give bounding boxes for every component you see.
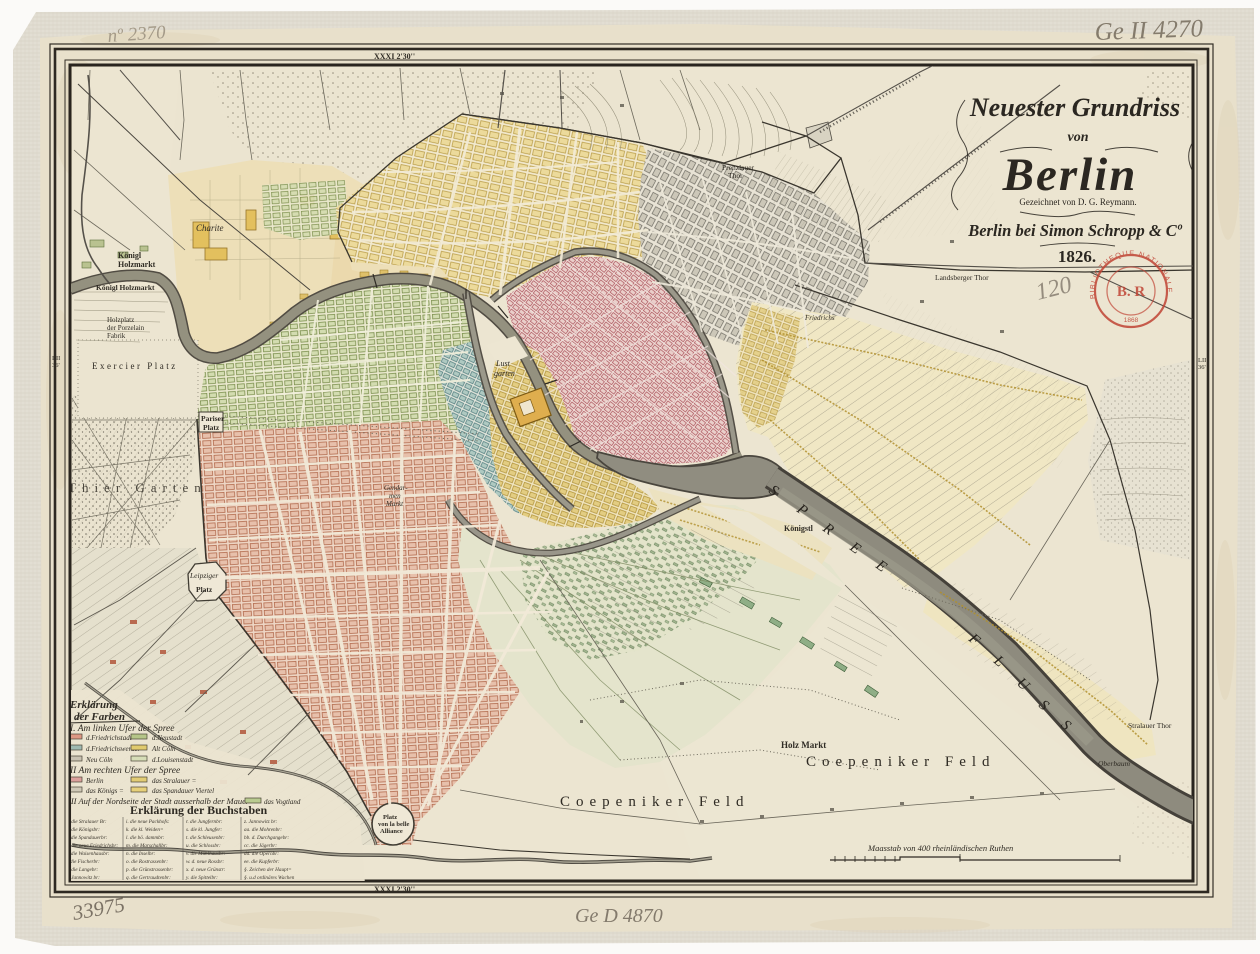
svg-text:f. die Fischerbr:: f. die Fischerbr: — [66, 858, 100, 865]
svg-text:m. die Marschallbr:: m. die Marschallbr: — [126, 843, 168, 849]
svg-text:Markt: Markt — [385, 500, 404, 508]
svg-text:Berlin bei Simon Schropp & Cº: Berlin bei Simon Schropp & Cº — [967, 221, 1183, 240]
svg-text:Gezeichnet von D. G. Reymann.: Gezeichnet von D. G. Reymann. — [1019, 197, 1136, 207]
svg-text:p. die Grünstrassenbr:: p. die Grünstrassenbr: — [125, 867, 173, 873]
svg-text:Königl: Königl — [118, 251, 142, 260]
svg-text:aa. die Mohrenbr:: aa. die Mohrenbr: — [244, 827, 282, 833]
svg-text:B. R: B. R — [1117, 284, 1146, 300]
svg-text:d.Neustadt: d.Neustadt — [152, 734, 183, 742]
svg-text:Stralauer Thor: Stralauer Thor — [1128, 721, 1172, 730]
svg-text:Exercier Platz: Exercier Platz — [92, 361, 178, 371]
svg-text:ee. die Kupferbr:: ee. die Kupferbr: — [244, 858, 280, 865]
svg-text:men: men — [389, 492, 401, 500]
svg-text:s. die kl. Jungfer:: s. die kl. Jungfer: — [186, 826, 222, 833]
svg-text:Neu Cöln: Neu Cöln — [85, 756, 113, 764]
svg-text:Oberbaum: Oberbaum — [1098, 759, 1131, 768]
svg-text:nº 2370: nº 2370 — [107, 22, 167, 47]
svg-text:v. die Mühlhausbr:: v. die Mühlhausbr: — [186, 851, 226, 857]
svg-text:Holzplatz: Holzplatz — [107, 316, 134, 324]
svg-text:I. Am linken Ufer der Spree: I. Am linken Ufer der Spree — [69, 723, 174, 734]
svg-text:das Vogtland: das Vogtland — [264, 798, 301, 806]
svg-text:garten: garten — [494, 369, 515, 378]
svg-text:k. die kl. Weiden=: k. die kl. Weiden= — [126, 827, 163, 833]
svg-text:d.Louisenstadt: d.Louisenstadt — [152, 756, 194, 764]
svg-text:Coepeniker Feld: Coepeniker Feld — [806, 754, 996, 770]
svg-text:Thier Garten: Thier Garten — [68, 480, 207, 495]
svg-text:Friedrichs: Friedrichs — [804, 314, 835, 322]
svg-text:Königl Holzmarkt: Königl Holzmarkt — [96, 283, 155, 292]
svg-text:Landsberger Thor: Landsberger Thor — [935, 273, 989, 282]
svg-text:36': 36' — [1198, 364, 1206, 371]
svg-text:das Spandauer Viertel: das Spandauer Viertel — [152, 787, 214, 795]
svg-text:h. Jannowitz br:: h. Jannowitz br: — [66, 875, 100, 881]
svg-text:Leipziger: Leipziger — [189, 571, 218, 580]
svg-text:1868: 1868 — [1124, 317, 1139, 324]
svg-text:Coepeniker Feld: Coepeniker Feld — [560, 794, 750, 810]
svg-text:Erklärung: Erklärung — [69, 699, 118, 711]
svg-text:y. die Spittelbr:: y. die Spittelbr: — [185, 875, 218, 881]
svg-text:q. die Gertraudtenbr:: q. die Gertraudtenbr: — [126, 875, 171, 881]
svg-text:b. die Königsbr:: b. die Königsbr: — [66, 827, 100, 833]
svg-text:das Königs =: das Königs = — [86, 787, 124, 795]
svg-text:1826.: 1826. — [1058, 247, 1096, 266]
svg-text:Thor: Thor — [728, 171, 743, 180]
svg-text:u. die Schlossbr:: u. die Schlossbr: — [186, 843, 221, 849]
svg-text:r. die Jungfernbr:: r. die Jungfernbr: — [186, 818, 223, 825]
svg-text:Charite: Charite — [196, 223, 224, 233]
svg-text:Gendar-: Gendar- — [384, 484, 408, 492]
svg-text:Ge D 4870: Ge D 4870 — [575, 905, 663, 927]
svg-text:x. d. neue Grünstr:: x. d. neue Grünstr: — [185, 867, 226, 873]
svg-text:Alliance: Alliance — [380, 828, 403, 835]
svg-text:a. die Stralauer Br:: a. die Stralauer Br: — [66, 819, 107, 825]
svg-text:c. die Spandauerbr:: c. die Spandauerbr: — [66, 835, 108, 841]
svg-text:d.Friedrichstadt: d.Friedrichstadt — [86, 734, 133, 742]
svg-text:Neuester Grundriss: Neuester Grundriss — [969, 93, 1180, 122]
svg-text:§. u.d ordinäres Wachen: §. u.d ordinäres Wachen — [244, 875, 295, 881]
svg-text:von la belle: von la belle — [378, 821, 410, 828]
svg-text:§. Zeichen der Haupt=: §. Zeichen der Haupt= — [244, 867, 292, 873]
svg-text:LII: LII — [1198, 357, 1206, 364]
svg-text:Berlin: Berlin — [86, 777, 104, 785]
svg-text:t. die Schleusenbr:: t. die Schleusenbr: — [186, 835, 225, 841]
svg-text:36': 36' — [52, 362, 60, 369]
svg-text:Platz: Platz — [383, 814, 397, 821]
svg-text:bb. d. Durchgangebr:: bb. d. Durchgangebr: — [244, 835, 289, 841]
svg-text:von: von — [1068, 130, 1089, 145]
svg-text:Platz: Platz — [203, 423, 220, 432]
svg-text:Alt Cöln: Alt Cöln — [151, 745, 176, 753]
svg-text:cc. die Jägerbr:: cc. die Jägerbr: — [244, 843, 277, 849]
svg-text:Holzmarkt: Holzmarkt — [118, 260, 156, 269]
svg-text:der Porzelain: der Porzelain — [107, 324, 145, 332]
svg-text:i. die neue Packhofs:: i. die neue Packhofs: — [126, 818, 170, 825]
svg-text:das Stralauer =: das Stralauer = — [152, 777, 197, 785]
svg-text:Fabrik: Fabrik — [107, 332, 126, 340]
svg-text:Holz Markt: Holz Markt — [781, 740, 826, 750]
svg-text:LII: LII — [52, 355, 60, 362]
svg-text:Lust: Lust — [495, 359, 511, 368]
svg-text:XXXI 2'30'': XXXI 2'30'' — [374, 52, 415, 61]
svg-text:II Am rechten Ufer der Spree: II Am rechten Ufer der Spree — [69, 765, 180, 776]
svg-text:Platz: Platz — [196, 585, 213, 594]
svg-text:Maasstab von 400 rheinländisch: Maasstab von 400 rheinländischen Ruthen — [867, 843, 1013, 853]
svg-text:Pariser: Pariser — [201, 414, 225, 423]
svg-text:l. die bö. dammbr:: l. die bö. dammbr: — [126, 835, 165, 841]
svg-text:Erklärung der Buchstaben: Erklärung der Buchstaben — [130, 803, 267, 817]
svg-text:Ge II 4270: Ge II 4270 — [1094, 15, 1204, 46]
svg-text:Königstl: Königstl — [784, 524, 814, 533]
svg-text:d. die neue Friedrichsbr:: d. die neue Friedrichsbr: — [66, 843, 118, 849]
svg-text:e. die Waisenhausbr:: e. die Waisenhausbr: — [66, 851, 110, 857]
svg-text:dd. die Opernbr:: dd. die Opernbr: — [244, 851, 279, 857]
svg-text:XXXI 2'30'': XXXI 2'30'' — [374, 885, 415, 894]
svg-text:w. d. neue Rossbr:: w. d. neue Rossbr: — [186, 859, 224, 865]
svg-text:n. die Inselbr:: n. die Inselbr: — [126, 851, 156, 857]
svg-text:Berlin: Berlin — [1002, 149, 1138, 201]
svg-text:z. Jannowitz br:: z. Jannowitz br: — [243, 819, 278, 825]
svg-text:o. die Rostrassenbr:: o. die Rostrassenbr: — [126, 859, 168, 865]
